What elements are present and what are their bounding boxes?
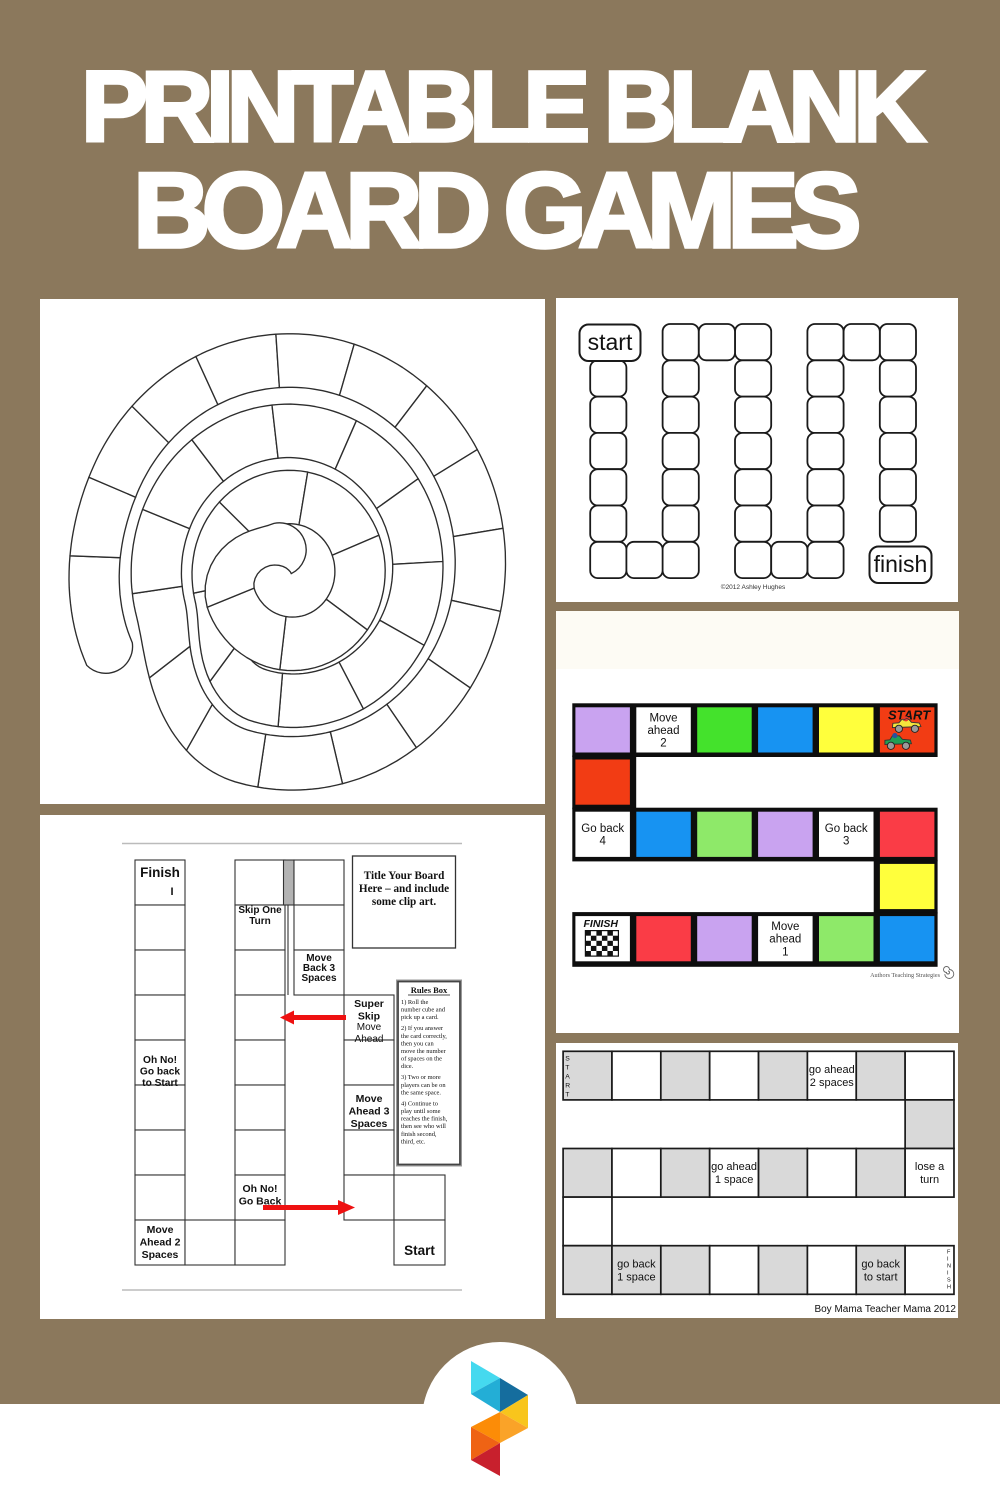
svg-text:Start: Start (404, 1243, 435, 1258)
svg-text:Go back: Go back (825, 823, 868, 835)
svg-text:S: S (565, 1055, 570, 1062)
svg-text:2 spaces: 2 spaces (810, 1077, 855, 1089)
svg-text:Move: Move (356, 1093, 383, 1105)
svg-text:third, etc.: third, etc. (401, 1138, 426, 1145)
svg-text:turn: turn (920, 1174, 939, 1186)
svg-text:ahead: ahead (648, 725, 680, 737)
svg-text:Here – and include: Here – and include (359, 883, 449, 895)
svg-text:then you can: then you can (401, 1040, 434, 1047)
svg-text:T: T (565, 1091, 569, 1098)
svg-text:N: N (947, 1264, 951, 1270)
svg-text:S: S (947, 1278, 951, 1284)
svg-text:R: R (565, 1082, 570, 1089)
svg-text:to Start: to Start (142, 1078, 178, 1089)
svg-text:1 space: 1 space (715, 1174, 754, 1186)
svg-text:3) Two or more: 3) Two or more (401, 1074, 441, 1081)
svg-text:move the number: move the number (401, 1048, 447, 1055)
svg-text:Move: Move (649, 712, 677, 724)
svg-text:©2012 Ashley Hughes: ©2012 Ashley Hughes (721, 583, 786, 591)
svg-text:play until some: play until some (401, 1108, 441, 1115)
svg-text:Go back: Go back (581, 823, 624, 835)
svg-text:of spaces on the: of spaces on the (401, 1056, 442, 1063)
svg-text:Move: Move (357, 1022, 382, 1033)
svg-text:2) If you answer: 2) If you answer (401, 1025, 444, 1032)
svg-text:T: T (565, 1064, 569, 1071)
svg-text:4) Continue to: 4) Continue to (401, 1100, 438, 1107)
svg-text:Ahead 2: Ahead 2 (140, 1236, 181, 1248)
svg-text:finish: finish (874, 551, 928, 577)
svg-text:to start: to start (864, 1272, 898, 1284)
svg-text:Title Your Board: Title Your Board (364, 870, 445, 882)
svg-text:Finish: Finish (140, 865, 180, 880)
svg-text:dice.: dice. (401, 1063, 414, 1070)
svg-text:1: 1 (782, 946, 788, 958)
svg-text:Turn: Turn (249, 916, 270, 927)
svg-text:Spaces: Spaces (351, 1118, 388, 1130)
svg-text:start: start (588, 329, 633, 355)
svg-text:the card correctly,: the card correctly, (401, 1033, 447, 1040)
svg-text:Go back: Go back (140, 1067, 181, 1078)
svg-text:Spaces: Spaces (142, 1249, 179, 1261)
svg-text:then see who will: then see who will (401, 1123, 446, 1130)
svg-text:some clip art.: some clip art. (372, 896, 437, 908)
svg-text:Skip One: Skip One (238, 905, 282, 916)
svg-text:1 space: 1 space (617, 1272, 656, 1284)
svg-text:Authors Teaching Strategies: Authors Teaching Strategies (870, 972, 940, 979)
svg-text:ahead: ahead (769, 934, 801, 946)
svg-text:A: A (565, 1073, 570, 1080)
svg-text:reaches the finish,: reaches the finish, (401, 1116, 448, 1123)
svg-text:number cube and: number cube and (401, 1007, 446, 1014)
svg-text:Skip: Skip (358, 1010, 380, 1022)
svg-text:go ahead: go ahead (809, 1064, 855, 1076)
svg-text:3: 3 (843, 836, 849, 848)
svg-text:FINISH: FINISH (583, 918, 618, 930)
svg-text:pick up a card.: pick up a card. (401, 1014, 439, 1021)
svg-text:4: 4 (599, 836, 606, 848)
svg-text:Move: Move (771, 921, 799, 933)
svg-text:go back: go back (617, 1258, 656, 1270)
svg-text:players can be on: players can be on (401, 1082, 446, 1089)
svg-text:H: H (947, 1285, 951, 1291)
svg-text:Boy Mama Teacher Mama 2012: Boy Mama Teacher Mama 2012 (814, 1304, 956, 1315)
svg-text:the same space.: the same space. (401, 1089, 441, 1096)
svg-text:Rules Box: Rules Box (411, 985, 448, 995)
svg-text:Spaces: Spaces (301, 973, 336, 984)
svg-text:1) Roll the: 1) Roll the (401, 999, 428, 1006)
svg-text:2: 2 (660, 738, 666, 750)
svg-text:Super: Super (354, 998, 384, 1010)
svg-text:Move: Move (147, 1224, 174, 1236)
svg-text:finish second,: finish second, (401, 1131, 437, 1138)
svg-text:go back: go back (861, 1258, 900, 1270)
svg-text:Oh No!: Oh No! (143, 1055, 177, 1066)
svg-text:Ahead: Ahead (355, 1034, 384, 1045)
svg-text:go ahead: go ahead (711, 1161, 757, 1173)
svg-text:lose a: lose a (915, 1161, 945, 1173)
svg-text:I: I (170, 886, 173, 898)
svg-text:Oh No!: Oh No! (243, 1183, 278, 1195)
svg-text:Ahead 3: Ahead 3 (349, 1105, 390, 1117)
